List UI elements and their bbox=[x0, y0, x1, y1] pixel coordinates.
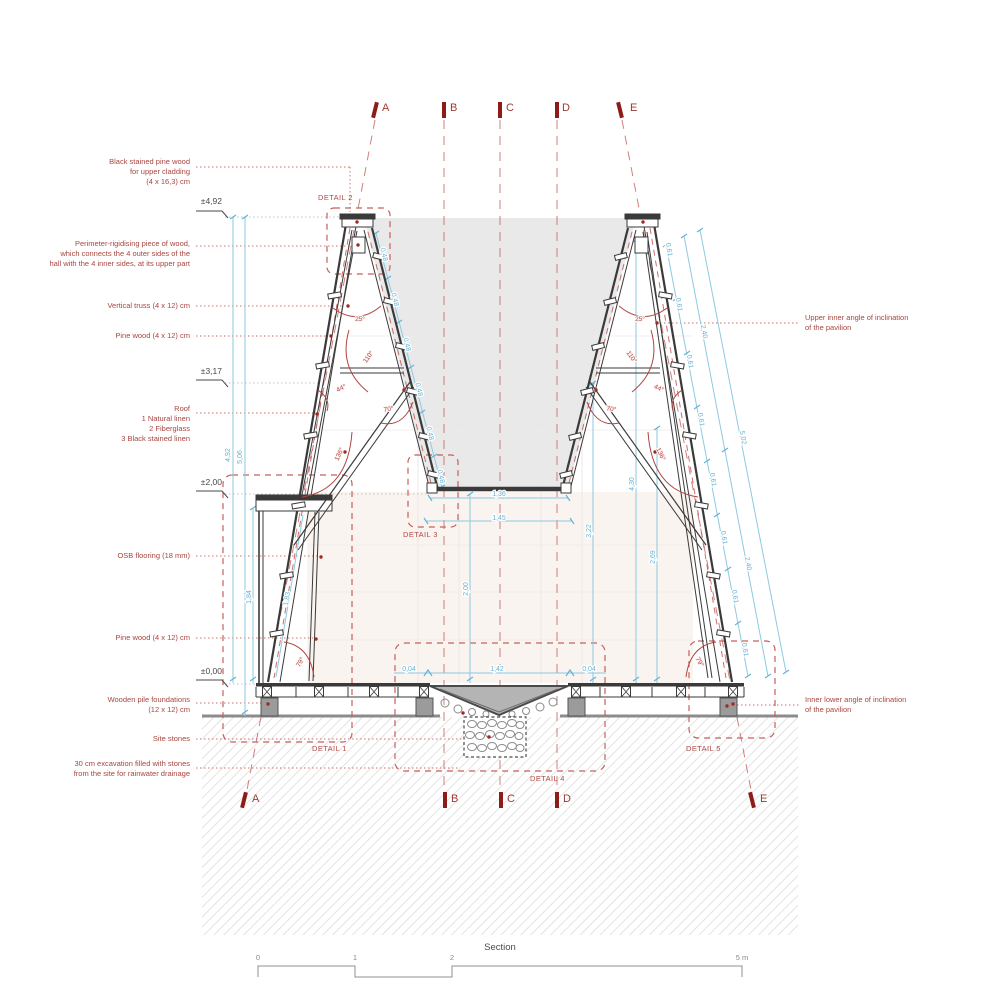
dim-506: 5,06 bbox=[237, 450, 244, 464]
detail-label-4: DETAIL 4 bbox=[530, 774, 565, 783]
dim-061: 0,61 bbox=[719, 530, 728, 545]
dim-322: 3,22 bbox=[586, 524, 593, 538]
detail-label-5: DETAIL 5 bbox=[686, 744, 721, 753]
dim-492: 4,92 bbox=[225, 448, 232, 462]
elevation-317: ±3,17 bbox=[162, 366, 222, 376]
dim-142: 1,42 bbox=[490, 666, 504, 673]
elevation-000: ±0,00 bbox=[162, 666, 222, 676]
dim-200: 2,00 bbox=[463, 582, 470, 596]
angle-70-right: 70° bbox=[606, 404, 617, 414]
annotation-pile-foundations: Wooden pile foundations (12 x 12) cm bbox=[0, 695, 190, 715]
section-marker-b-top: B bbox=[450, 102, 457, 114]
dim-061: 0,61 bbox=[685, 354, 694, 369]
dim-061: 0,61 bbox=[740, 642, 749, 657]
annotation-osb-flooring: OSB flooring (18 mm) bbox=[0, 551, 190, 561]
annotation-upper-inner-angle: Upper inner angle of inclination of the … bbox=[805, 313, 995, 333]
angle-25-right: 25° bbox=[635, 315, 645, 323]
angle-110-right: 110° bbox=[625, 349, 639, 365]
section-marker-e-top: E bbox=[630, 102, 637, 114]
dim-145: 1,45 bbox=[492, 515, 506, 522]
scale-2: 2 bbox=[450, 953, 454, 962]
annotation-excavation: 30 cm excavation filled with stones from… bbox=[0, 759, 190, 779]
drawing-title: Section bbox=[484, 942, 516, 953]
angle-44-left: 44° bbox=[335, 382, 348, 394]
dim-004-left: 0,04 bbox=[402, 666, 416, 673]
dim-061: 0,61 bbox=[674, 297, 683, 312]
dim-502: 5,02 bbox=[738, 430, 747, 445]
annotation-vertical-truss: Vertical truss (4 x 12) cm bbox=[0, 301, 190, 311]
drainage-pit bbox=[464, 717, 526, 757]
section-marker-a-top: A bbox=[382, 102, 389, 114]
dim-061: 0,61 bbox=[708, 472, 717, 487]
annotation-roof-layers: Roof 1 Natural linen 2 Fiberglass 3 Blac… bbox=[0, 404, 190, 444]
angle-44-right: 44° bbox=[653, 382, 666, 394]
angle-79-right: 79° bbox=[694, 656, 706, 669]
annotation-pine-wood-upper: Pine wood (4 x 12) cm bbox=[0, 331, 190, 341]
dim-184: 1,84 bbox=[246, 590, 253, 604]
detail-label-3: DETAIL 3 bbox=[403, 530, 438, 539]
angle-25-left: 25° bbox=[355, 315, 365, 323]
drawing-canvas: 4,92 5,06 1,84 1,83 2,00 3,22 4,30 2,69 … bbox=[0, 0, 1000, 1000]
annotation-perimeter-piece: Perimeter-rigidising piece of wood, whic… bbox=[0, 239, 190, 269]
section-marker-c-bottom: C bbox=[507, 793, 515, 805]
section-marker-b-bottom: B bbox=[451, 793, 458, 805]
dim-430: 4,30 bbox=[629, 477, 636, 491]
detail-label-2: DETAIL 2 bbox=[318, 193, 353, 202]
section-marker-a-bottom: A bbox=[252, 793, 259, 805]
annotation-inner-lower-angle: Inner lower angle of inclination of the … bbox=[805, 695, 995, 715]
scale-0: 0 bbox=[256, 953, 260, 962]
dim-240: 2,40 bbox=[743, 556, 752, 571]
dim-061: 0,61 bbox=[730, 589, 739, 604]
section-marker-d-bottom: D bbox=[563, 793, 571, 805]
section-marker-c-top: C bbox=[506, 102, 514, 114]
dim-061: 0,61 bbox=[696, 412, 705, 427]
dim-269: 2,69 bbox=[650, 550, 657, 564]
dim-183: 1,83 bbox=[283, 591, 292, 606]
angle-136-right: 136° bbox=[654, 446, 667, 462]
drain-funnel bbox=[430, 686, 568, 717]
scale-1: 1 bbox=[353, 953, 357, 962]
scale-5m: 5 m bbox=[736, 953, 749, 962]
dim-240: 2,40 bbox=[699, 324, 708, 339]
elevation-492: ±4,92 bbox=[162, 196, 222, 206]
elevation-200: ±2,00 bbox=[162, 477, 222, 487]
annotation-site-stones: Site stones bbox=[0, 734, 190, 744]
section-marker-e-bottom: E bbox=[760, 793, 767, 805]
angle-136-left: 136° bbox=[333, 446, 346, 462]
annotation-upper-cladding: Black stained pine wood for upper claddi… bbox=[0, 157, 190, 187]
section-drawing: 4,92 5,06 1,84 1,83 2,00 3,22 4,30 2,69 … bbox=[0, 0, 1000, 1000]
dim-004-right: 0,04 bbox=[582, 666, 596, 673]
detail-label-1: DETAIL 1 bbox=[312, 744, 347, 753]
dim-136: 1,36 bbox=[492, 491, 506, 498]
scale-bar: 0 1 2 5 m Section bbox=[256, 942, 748, 977]
angle-79-left: 79° bbox=[294, 655, 306, 668]
angle-70-left: 70° bbox=[383, 404, 394, 414]
angle-110-left: 110° bbox=[361, 349, 375, 365]
annotation-pine-wood-lower: Pine wood (4 x 12) cm bbox=[0, 633, 190, 643]
section-marker-d-top: D bbox=[562, 102, 570, 114]
dim-061: 0,61 bbox=[664, 242, 673, 257]
